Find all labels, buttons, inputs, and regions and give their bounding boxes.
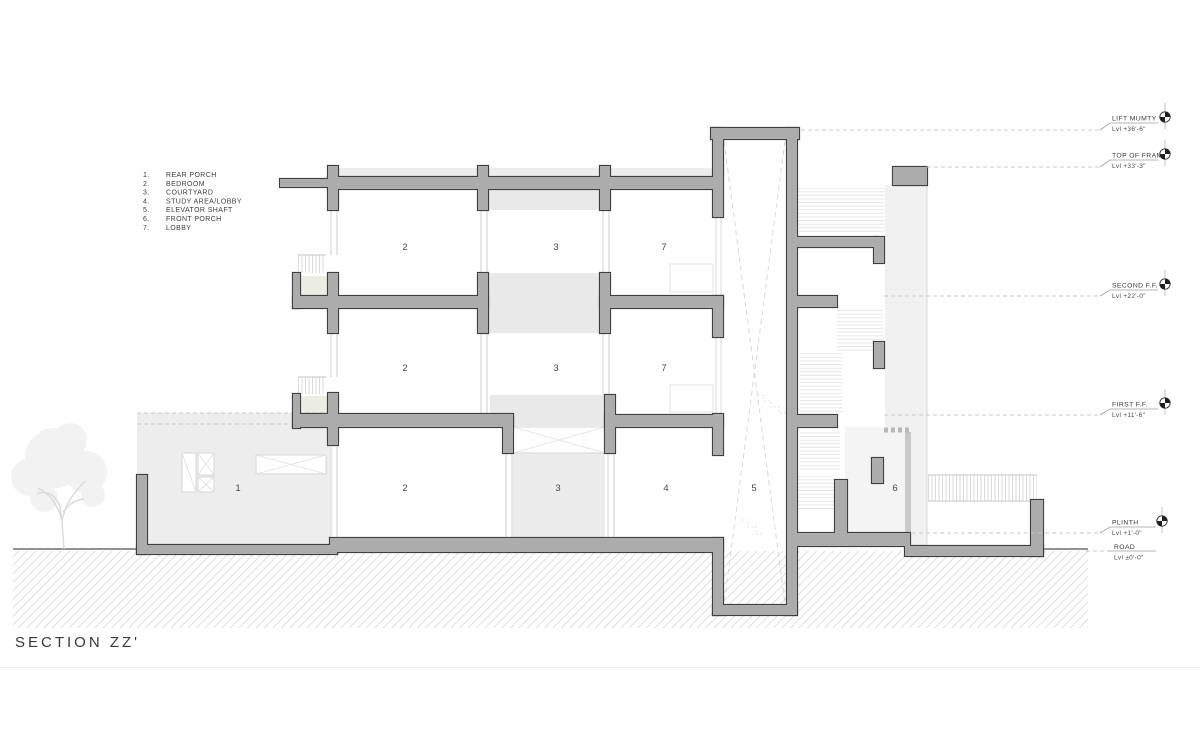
roof-parapet-beyond	[338, 168, 713, 177]
drawing-page: 2 3 7 2 3 7 1 2 3 4 5 6 1. REAR PORCH 2.…	[0, 0, 1200, 731]
room-label: 3	[553, 363, 558, 374]
level-value: Lvl ±0'-0"	[1114, 555, 1144, 562]
legend-label: BEDROOM	[166, 181, 205, 188]
room-label: 6	[892, 483, 897, 494]
level-value: Lvl +1'-0"	[1112, 530, 1142, 537]
rear-porch-area	[137, 413, 330, 545]
courtyard-spandrel	[488, 273, 600, 333]
legend-label: REAR PORCH	[166, 172, 217, 179]
wall-edge-beyond	[905, 432, 911, 543]
level-value: Lvl +36'-6"	[1112, 126, 1146, 133]
legend-label: STUDY AREA/LOBBY	[166, 198, 242, 205]
legend-num: 7.	[143, 225, 150, 232]
section-drawing: 2 3 7 2 3 7 1 2 3 4 5 6 1. REAR PORCH 2.…	[0, 0, 1200, 731]
balcony-fill	[300, 276, 328, 296]
balcony-fill	[300, 396, 328, 415]
legend: 1. REAR PORCH 2. BEDROOM 3. COURTYARD 4.…	[143, 172, 242, 232]
legend-label: COURTYARD	[166, 190, 213, 197]
room-label: 2	[402, 483, 407, 494]
level-name: FIRST F.F.	[1112, 402, 1148, 409]
courtyard-spandrel	[488, 189, 600, 210]
level-marker-lift-mumty: LIFT MUMTY Lvl +36'-6"	[801, 103, 1170, 133]
level-name: PLINTH	[1112, 520, 1139, 527]
level-marker-top-of-frame: TOP OF FRAME Lvl +33'-3"	[927, 140, 1170, 170]
courtyard-ground	[513, 453, 605, 539]
level-name: SECOND F.F.	[1112, 283, 1158, 290]
legend-num: 1.	[143, 172, 150, 179]
level-marker-road: ROAD Lvl ±0'-0"	[1086, 544, 1156, 562]
tree	[11, 423, 107, 549]
room-label: 1	[235, 483, 240, 494]
legend-num: 4.	[143, 198, 150, 205]
level-name: ROAD	[1114, 544, 1135, 551]
legend-num: 6.	[143, 216, 150, 223]
page-title: SECTION ZZ'	[15, 634, 140, 651]
room-label: 3	[553, 242, 558, 253]
room-label: 4	[663, 483, 668, 494]
door-outline	[670, 264, 713, 292]
room-label: 7	[661, 363, 666, 374]
legend-num: 3.	[143, 190, 150, 197]
level-name: TOP OF FRAME	[1112, 153, 1168, 160]
door-outline	[670, 385, 713, 412]
legend-num: 2.	[143, 181, 150, 188]
elevator-x-bracing	[724, 141, 786, 604]
front-porch-railing	[928, 475, 1037, 501]
room-label: 2	[402, 242, 407, 253]
legend-label: ELEVATOR SHAFT	[166, 207, 233, 214]
legend-num: 5.	[143, 207, 150, 214]
level-value: Lvl +11'-6"	[1112, 412, 1146, 419]
room-label: 7	[661, 242, 666, 253]
level-value: Lvl +22'-0"	[1112, 293, 1146, 300]
ground-hatch	[13, 549, 1088, 628]
legend-label: LOBBY	[166, 225, 191, 232]
level-name: LIFT MUMTY	[1112, 116, 1157, 123]
room-label: 5	[751, 483, 756, 494]
legend-label: FRONT PORCH	[166, 216, 222, 223]
level-value: Lvl +33'-3"	[1112, 163, 1146, 170]
room-label: 2	[402, 363, 407, 374]
room-label: 3	[555, 483, 560, 494]
